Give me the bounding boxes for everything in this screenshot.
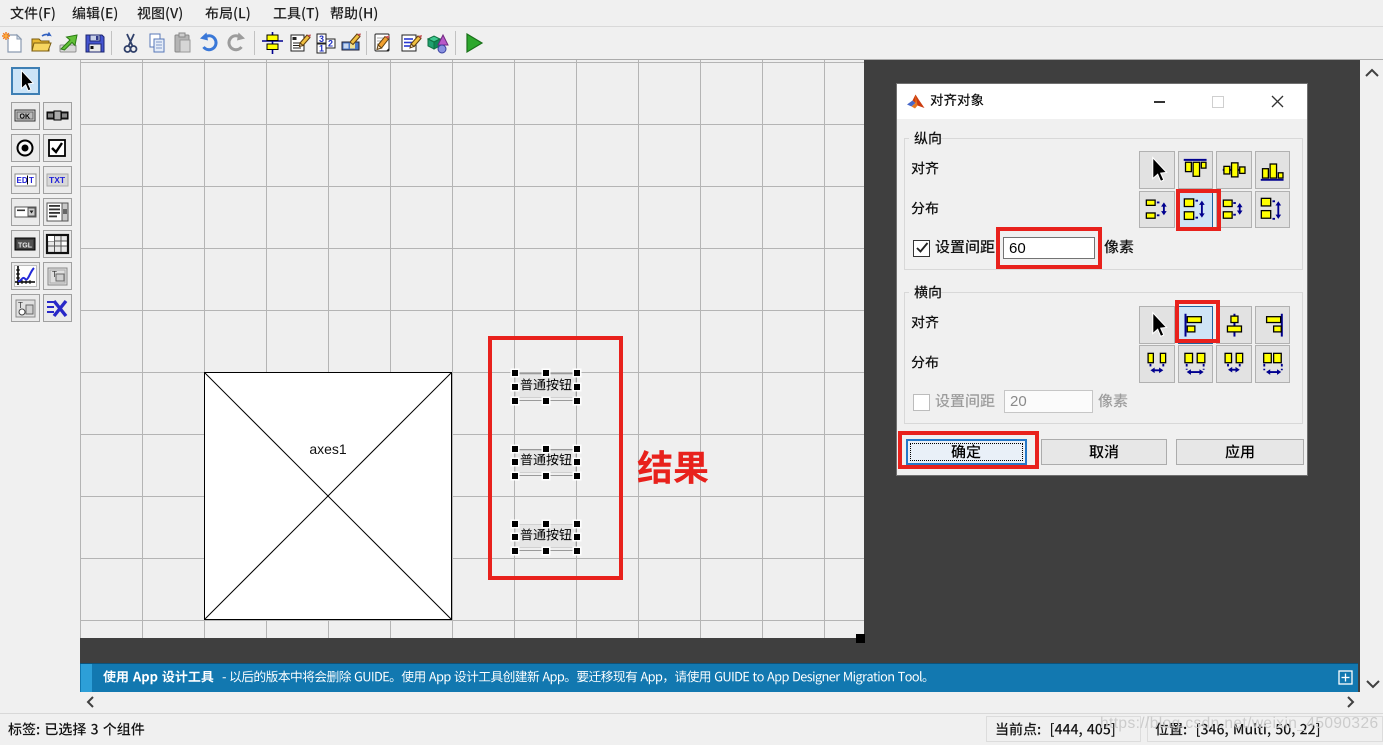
svg-text:ED: ED (17, 176, 28, 185)
svg-text:TGL: TGL (18, 243, 33, 250)
svg-text:TXT: TXT (49, 175, 66, 185)
svg-text:1: 1 (319, 44, 324, 54)
svg-text:OK: OK (20, 114, 31, 121)
svg-text:2: 2 (328, 39, 333, 49)
svg-text:T: T (29, 176, 34, 185)
svg-text:3: 3 (319, 34, 324, 44)
